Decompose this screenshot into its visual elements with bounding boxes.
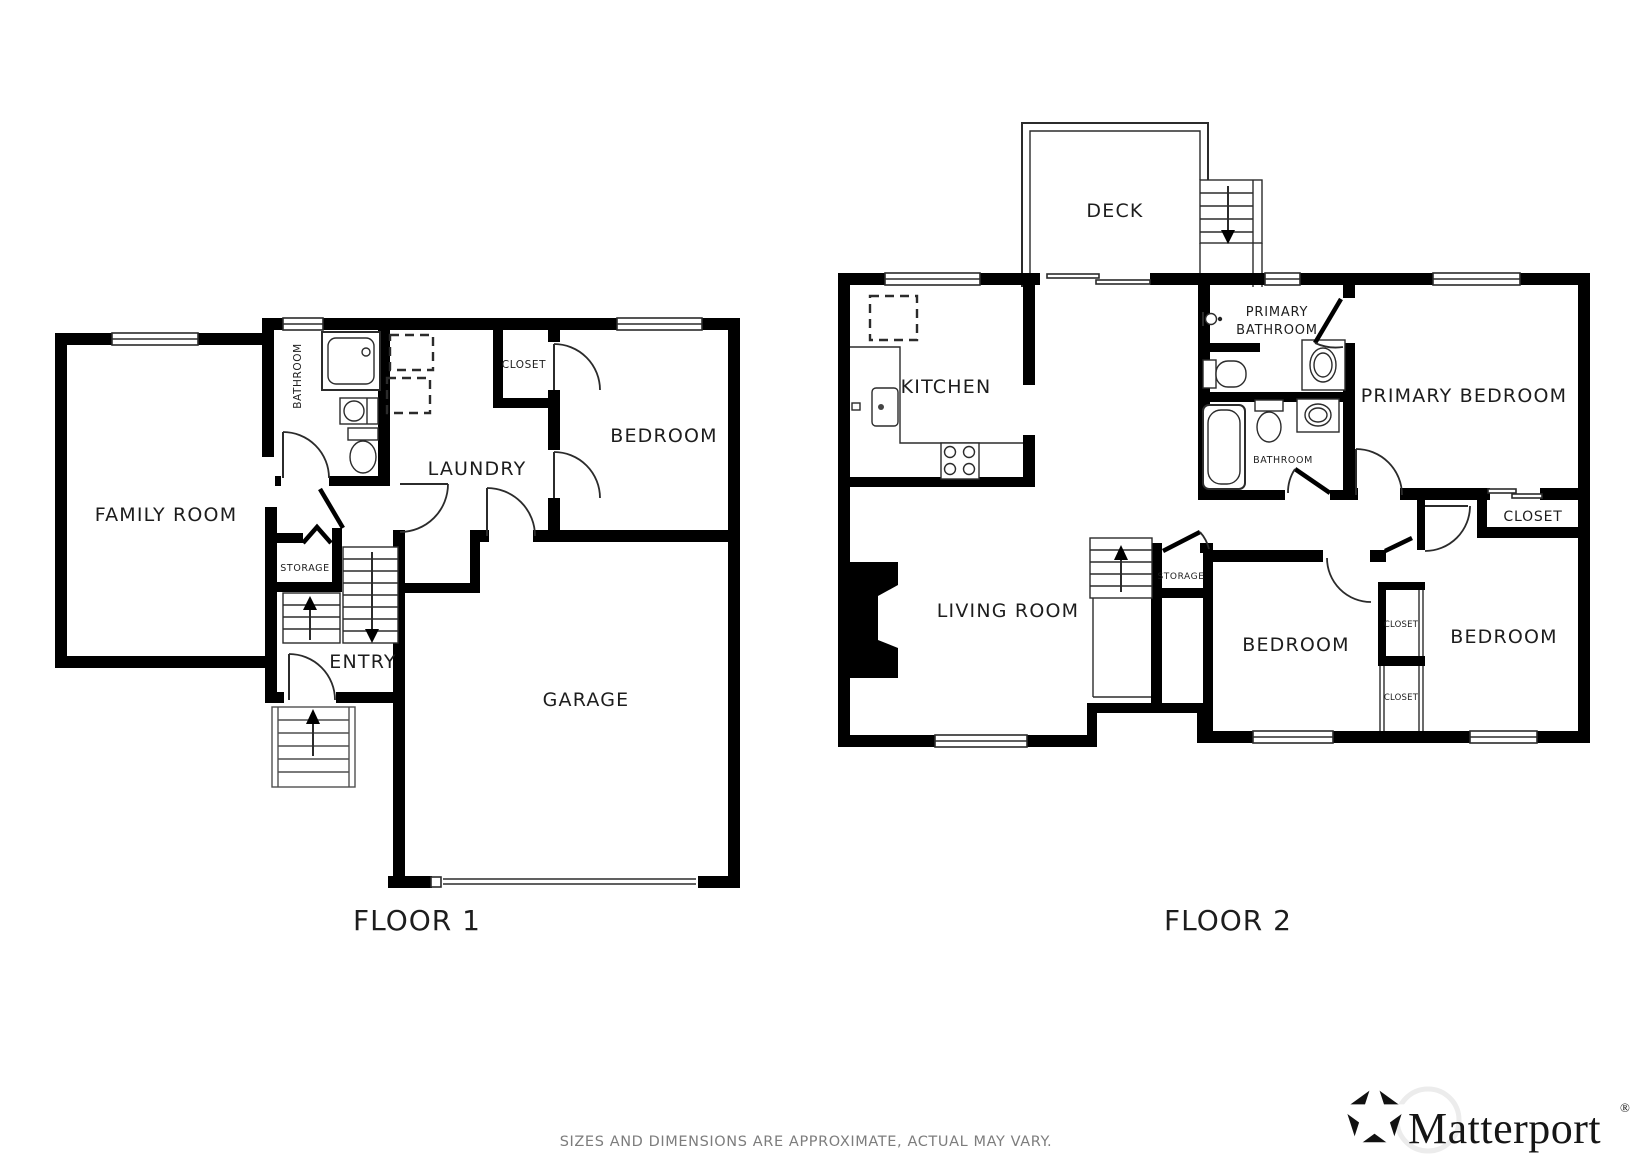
- bedroom-right-label: BEDROOM: [1450, 626, 1558, 648]
- window: [935, 735, 1027, 747]
- living-room-label: LIVING ROOM: [937, 600, 1079, 622]
- registered-mark: ®: [1620, 1100, 1630, 1115]
- bathroom-label: BATHROOM: [1253, 455, 1313, 466]
- window: [1253, 731, 1333, 743]
- family-room-label: FAMILY ROOM: [95, 504, 238, 526]
- primary-bathroom-label-line1: PRIMARY: [1246, 305, 1309, 320]
- door-arc: [400, 484, 448, 532]
- closet-left-label: CLOSET: [1384, 620, 1419, 630]
- floor2-stairs: [1090, 538, 1152, 697]
- deck-stairs: [1200, 180, 1262, 287]
- bedroom-label: BEDROOM: [610, 425, 718, 447]
- kitchen-label: KITCHEN: [901, 376, 992, 398]
- door-arc: [284, 654, 336, 703]
- entry-label: ENTRY: [329, 651, 396, 673]
- toilet-icon: [1255, 400, 1283, 442]
- garage-door: [431, 877, 696, 887]
- garage-label: GARAGE: [543, 689, 630, 711]
- door-leaf-diagonal: [320, 489, 343, 528]
- floor1-title: FLOOR 1: [353, 904, 481, 937]
- door-arc: [1356, 449, 1402, 495]
- door-arc: [487, 488, 535, 542]
- window: [617, 318, 702, 330]
- window: [885, 273, 980, 285]
- matterport-logo: Matterport ®: [1343, 1084, 1630, 1153]
- bedroom-left-label: BEDROOM: [1242, 634, 1350, 656]
- bifold-door: [303, 527, 331, 543]
- toilet-icon: [1203, 360, 1246, 388]
- floor2-labels: DECK KITCHEN PRIMARY BATHROOM PRIMARY BE…: [901, 200, 1568, 937]
- door-arc: [1327, 538, 1412, 602]
- deck-label: DECK: [1086, 200, 1143, 222]
- bathroom-fixtures: [1203, 399, 1339, 489]
- matterport-logo-text: Matterport: [1408, 1104, 1601, 1153]
- window: [1433, 273, 1520, 285]
- deck-sliding-door: [1047, 274, 1150, 284]
- door-arc: [283, 432, 329, 478]
- storage-label: STORAGE: [1157, 572, 1204, 582]
- kitchen-counter: [850, 347, 1023, 479]
- sink-icon: [340, 398, 378, 424]
- floor1-plan: FAMILY ROOM BATHROOM LAUNDRY CLOSET BEDR…: [55, 318, 740, 937]
- door-arc: [554, 344, 600, 390]
- window: [283, 318, 323, 330]
- door-arc: [554, 452, 600, 498]
- storage-label: STORAGE: [280, 563, 329, 574]
- door-arc: [1288, 469, 1330, 493]
- shower-icon: [322, 332, 380, 390]
- floor2-title: FLOOR 2: [1164, 904, 1292, 937]
- stove-icon: [941, 443, 979, 479]
- floorplan-canvas: FAMILY ROOM BATHROOM LAUNDRY CLOSET BEDR…: [0, 0, 1647, 1164]
- primary-bathroom-label-line2: BATHROOM: [1236, 323, 1318, 338]
- closet-right-label: CLOSET: [1384, 693, 1419, 703]
- laundry-label: LAUNDRY: [428, 458, 527, 480]
- entry-exterior-steps: [272, 707, 355, 787]
- fireplace-icon: [850, 562, 898, 678]
- disclaimer-text: SIZES AND DIMENSIONS ARE APPROXIMATE, AC…: [560, 1134, 1053, 1150]
- floorplan-page: FAMILY ROOM BATHROOM LAUNDRY CLOSET BEDR…: [0, 0, 1647, 1164]
- toilet-icon: [348, 428, 378, 473]
- sink-icon: [1297, 399, 1339, 432]
- window: [112, 333, 198, 345]
- washer-dryer-outline: [387, 335, 433, 413]
- matterport-logo-icon: [1343, 1084, 1407, 1145]
- door-arc: [1425, 506, 1470, 551]
- primary-bedroom-label: PRIMARY BEDROOM: [1361, 385, 1567, 407]
- refrigerator-outline: [870, 296, 917, 340]
- window: [1470, 731, 1537, 743]
- window: [1265, 273, 1300, 285]
- closet-label: CLOSET: [1503, 509, 1562, 525]
- floor1-labels: FAMILY ROOM BATHROOM LAUNDRY CLOSET BEDR…: [95, 343, 718, 937]
- kitchen-sink-icon: [852, 388, 898, 426]
- bathroom-label: BATHROOM: [292, 343, 304, 409]
- closet-label: CLOSET: [502, 359, 546, 371]
- floor2-plan: DECK KITCHEN PRIMARY BATHROOM PRIMARY BE…: [838, 123, 1590, 937]
- bathtub-icon: [1203, 405, 1245, 489]
- closet-sliding-door: [1488, 489, 1542, 498]
